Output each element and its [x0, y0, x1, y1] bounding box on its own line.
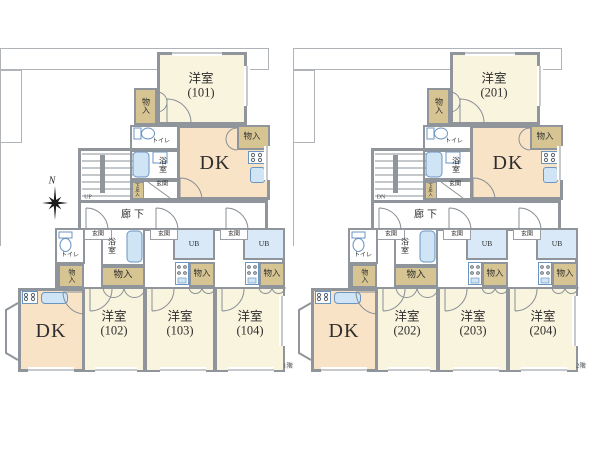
closet-label-top: 物入 [141, 98, 150, 115]
room-number-label: (201) [480, 86, 507, 100]
room-number-label: (204) [529, 324, 556, 338]
entrance-label-top: 玄関 [449, 182, 461, 189]
corridor-label: 廊下 [414, 209, 440, 220]
closet-label-104: 物入 [263, 269, 280, 279]
stair-direction-label: UP [84, 195, 92, 202]
floor-label: 1階 [283, 362, 293, 369]
shoe-box-label: 下足入 [135, 183, 140, 197]
room-type-label: 洋室 [187, 72, 214, 86]
closet-label-dk: 物入 [243, 132, 260, 142]
toilet-label-top: トイレ [152, 139, 170, 146]
shoe-box-label: 下足入 [428, 183, 433, 197]
entrance-label-top: 玄関 [156, 182, 168, 189]
entrance-label-104: 玄関 [228, 231, 240, 238]
toilet-label-top: トイレ [445, 139, 463, 146]
closet-label-102: 物入 [406, 271, 425, 282]
bath-label-top: 浴室 [451, 157, 460, 174]
room-type-label: 洋室 [100, 310, 127, 324]
room-number-label: (101) [187, 86, 214, 100]
dk-label-top: DK [493, 152, 524, 174]
corridor-label: 廊下 [121, 209, 147, 220]
bath-label-lower: 浴室 [107, 238, 116, 255]
label-layer: 洋室(201)洋室(202)洋室(203)洋室(204)DKDKトイレトイレ浴室… [293, 48, 593, 400]
closet-label-small: 物入 [67, 269, 75, 284]
room-type-label: 洋室 [459, 310, 486, 324]
closet-label-102: 物入 [113, 271, 132, 282]
unit-bath-label-103: UB [189, 240, 199, 248]
floor-plan-1f: 洋室(101)洋室(102)洋室(103)洋室(104)DKDKトイレトイレ浴室… [0, 48, 300, 400]
dk-label-lower: DK [329, 320, 360, 342]
compass-north-label: N [49, 175, 56, 186]
room-type-label: 洋室 [480, 72, 507, 86]
room-label-104: 洋室(204) [529, 310, 556, 339]
room-number-label: (103) [166, 324, 193, 338]
toilet-label-lower: トイレ [354, 253, 372, 260]
dk-label-lower: DK [36, 320, 67, 342]
entrance-label-103: 玄関 [451, 231, 463, 238]
closet-label-103: 物入 [486, 269, 503, 279]
room-type-label: 洋室 [236, 310, 263, 324]
closet-label-top: 物入 [434, 98, 443, 115]
bath-label-lower: 浴室 [400, 238, 409, 255]
room-number-label: (202) [393, 324, 420, 338]
toilet-label-lower: トイレ [61, 253, 79, 260]
room-type-label: 洋室 [393, 310, 420, 324]
room-number-label: (102) [100, 324, 127, 338]
unit-bath-label-103: UB [482, 240, 492, 248]
bath-label-top: 浴室 [158, 157, 167, 174]
room-type-label: 洋室 [166, 310, 193, 324]
floor-label: 2階 [576, 362, 586, 369]
room-label-104: 洋室(104) [236, 310, 263, 339]
closet-label-dk: 物入 [536, 132, 553, 142]
floor-plan-2f: 洋室(201)洋室(202)洋室(203)洋室(204)DKDKトイレトイレ浴室… [293, 48, 593, 400]
unit-bath-label-104: UB [552, 240, 562, 248]
room-label-102: 洋室(102) [100, 310, 127, 339]
room-label-103: 洋室(103) [166, 310, 193, 339]
entrance-label-104: 玄関 [521, 231, 533, 238]
room-number-label: (104) [236, 324, 263, 338]
dk-label-top: DK [200, 152, 231, 174]
stair-direction-label: DN [377, 195, 386, 202]
entrance-label-103: 玄関 [158, 231, 170, 238]
floorplan-image: { "colors": { "wall": "#8f959b", "line":… [0, 0, 600, 450]
room-label-top: 洋室(201) [480, 72, 507, 101]
unit-bath-label-104: UB [259, 240, 269, 248]
room-label-103: 洋室(203) [459, 310, 486, 339]
room-label-102: 洋室(202) [393, 310, 420, 339]
label-layer: 洋室(101)洋室(102)洋室(103)洋室(104)DKDKトイレトイレ浴室… [0, 48, 300, 400]
closet-label-small: 物入 [360, 269, 368, 284]
entrance-label-102: 玄関 [385, 231, 397, 238]
room-number-label: (203) [459, 324, 486, 338]
room-type-label: 洋室 [529, 310, 556, 324]
room-label-top: 洋室(101) [187, 72, 214, 101]
closet-label-104: 物入 [556, 269, 573, 279]
entrance-label-102: 玄関 [92, 231, 104, 238]
closet-label-103: 物入 [193, 269, 210, 279]
